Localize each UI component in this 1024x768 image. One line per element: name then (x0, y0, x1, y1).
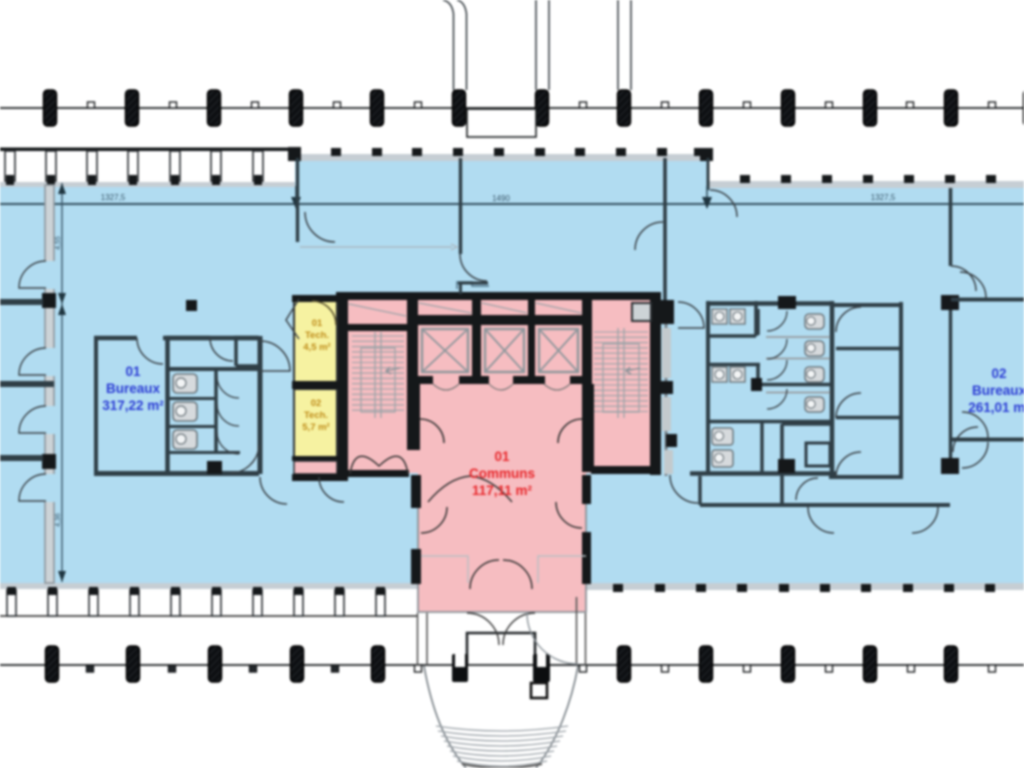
svg-text:5,7 m²: 5,7 m² (302, 422, 329, 433)
svg-text:02: 02 (311, 398, 322, 409)
svg-text:Bureaux: Bureaux (972, 383, 1024, 398)
svg-text:1327,5: 1327,5 (101, 193, 126, 202)
svg-text:01: 01 (312, 318, 323, 329)
svg-text:01: 01 (125, 364, 141, 379)
svg-text:02: 02 (991, 366, 1006, 381)
svg-text:Tech.: Tech. (304, 410, 328, 421)
svg-text:Tech.: Tech. (305, 330, 329, 341)
svg-text:261,01 m²: 261,01 m² (968, 400, 1024, 415)
svg-text:1327,5: 1327,5 (871, 193, 896, 202)
svg-text:1490: 1490 (492, 194, 510, 203)
svg-text:Bureaux: Bureaux (106, 381, 161, 396)
svg-text:Communs: Communs (469, 466, 535, 481)
svg-text:4,36: 4,36 (55, 513, 62, 527)
svg-text:117,11 m²: 117,11 m² (472, 483, 533, 498)
svg-text:317,22 m²: 317,22 m² (102, 398, 164, 413)
svg-text:4,5 m²: 4,5 m² (303, 342, 330, 353)
svg-text:01: 01 (494, 449, 510, 464)
svg-text:4,55: 4,55 (55, 236, 62, 250)
